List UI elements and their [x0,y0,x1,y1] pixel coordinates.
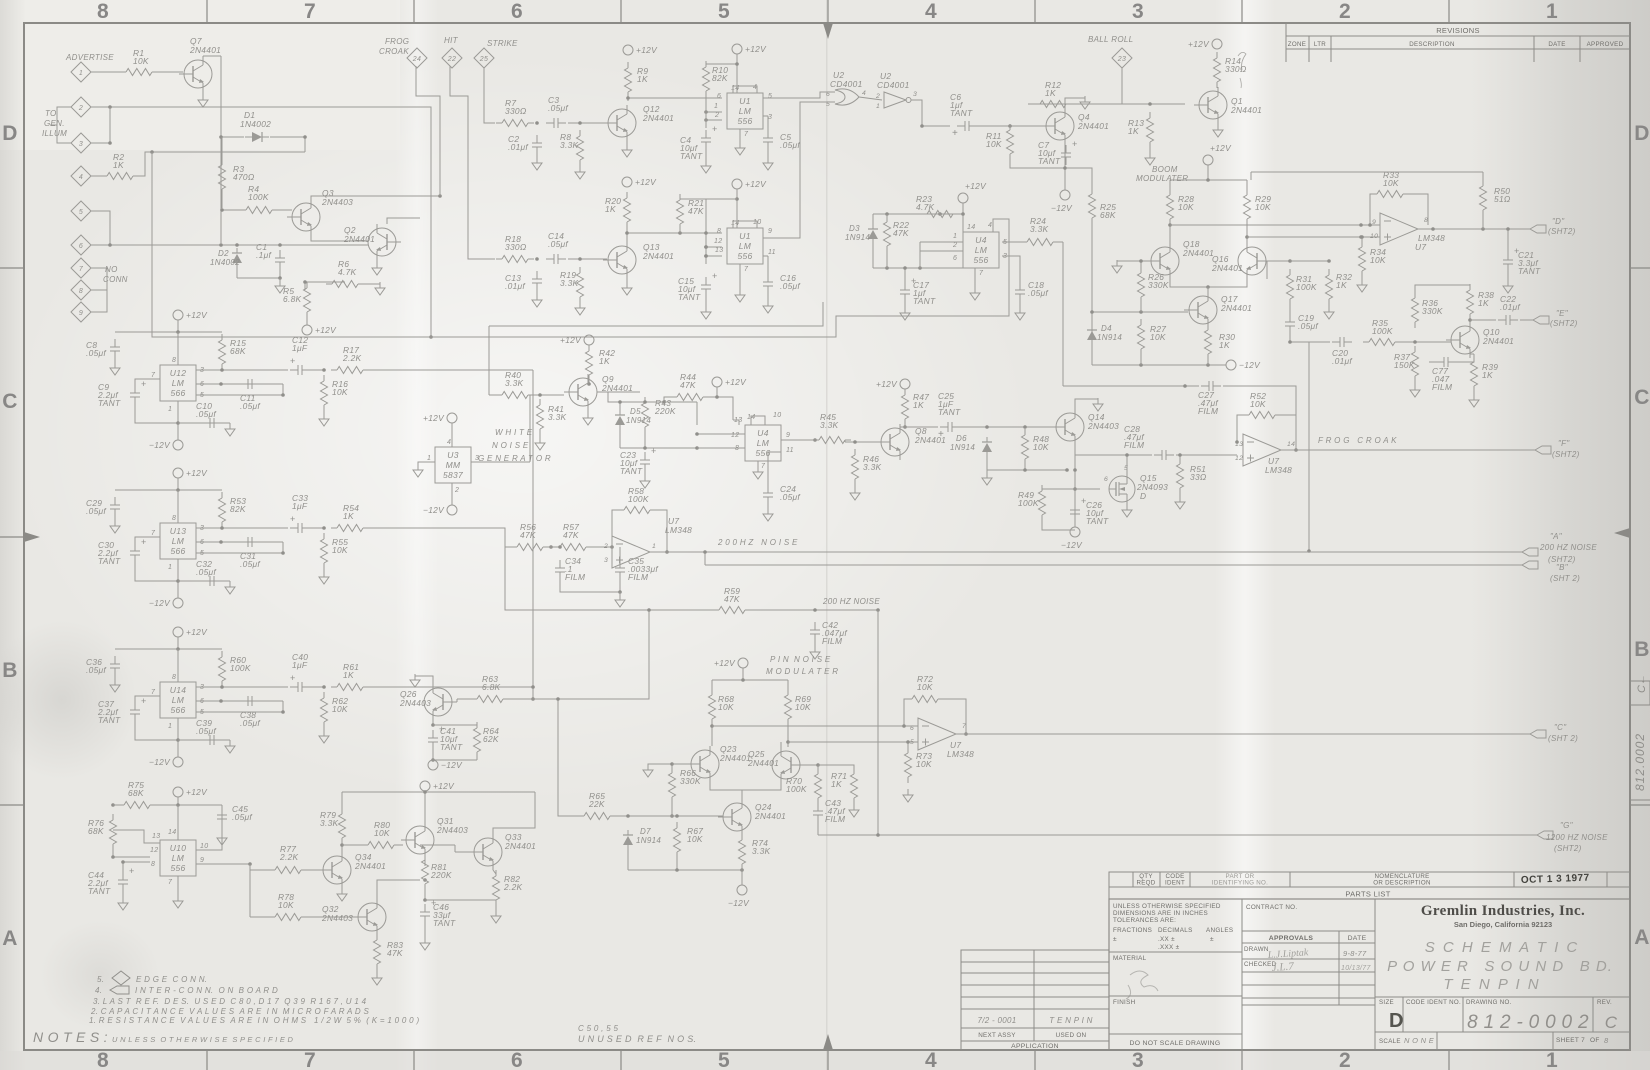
svg-text:.05μf: .05μf [196,567,217,577]
svg-text:8: 8 [79,288,83,295]
svg-text:.05μf: .05μf [240,559,261,569]
svg-text:47K: 47K [520,530,536,540]
svg-text:5: 5 [768,93,772,100]
svg-text:U12: U12 [170,368,187,378]
svg-text:DRAWING NO.: DRAWING NO. [1466,999,1512,1006]
svg-text:1K: 1K [1336,280,1347,290]
svg-text:10K: 10K [278,900,294,910]
svg-text:REQD: REQD [1136,880,1155,887]
svg-text:C 5 0 , 5 5: C 5 0 , 5 5 [578,1024,618,1033]
svg-text:TOLERANCES ARE:: TOLERANCES ARE: [1113,917,1176,924]
svg-text:+12V: +12V [186,787,208,797]
svg-text:4: 4 [79,174,83,181]
svg-text:82K: 82K [230,504,246,514]
svg-text:10: 10 [773,412,781,419]
svg-text:4: 4 [925,0,937,23]
svg-text:HIT: HIT [444,36,459,45]
svg-text:24: 24 [412,56,421,63]
svg-text:6: 6 [910,725,914,732]
svg-text:10K: 10K [795,702,811,712]
svg-text:+: + [290,356,296,366]
svg-text:APPLICATION: APPLICATION [1011,1043,1059,1050]
svg-text:"E": "E" [1556,309,1569,318]
svg-text:1N4002: 1N4002 [210,258,240,267]
svg-text:−12V: −12V [149,440,171,450]
svg-text:812.0002: 812.0002 [1633,733,1647,791]
svg-text:C←: C← [1636,674,1648,693]
svg-text:+: + [712,271,718,281]
svg-text:9: 9 [768,228,772,235]
svg-text:3.3K: 3.3K [820,420,839,430]
svg-text:OR DESCRIPTION: OR DESCRIPTION [1373,880,1431,887]
svg-text:U7: U7 [1415,242,1426,252]
svg-text:LM: LM [975,245,988,255]
svg-text:CROAK: CROAK [379,47,409,56]
svg-text:REV.: REV. [1597,999,1612,1006]
svg-text:LM348: LM348 [665,525,692,535]
svg-text:A: A [2,927,17,950]
svg-text:FILM: FILM [1124,440,1144,450]
svg-text:Gremlin Industries, Inc.: Gremlin Industries, Inc. [1421,903,1585,919]
svg-text:47K: 47K [680,380,696,390]
svg-text:8: 8 [172,357,176,364]
svg-text:1: 1 [714,103,718,110]
svg-text:D2: D2 [218,249,229,258]
svg-text:U3: U3 [447,450,458,460]
svg-text:6: 6 [1104,476,1108,483]
svg-text:CODE IDENT NO.: CODE IDENT NO. [1406,999,1461,1006]
svg-text:SCALE: SCALE [1379,1038,1401,1045]
svg-text:TANT: TANT [678,292,701,302]
svg-text:100K: 100K [786,784,807,794]
svg-text:2.2K: 2.2K [503,882,523,892]
svg-text:IDENT: IDENT [1165,880,1185,887]
svg-text:1200 HZ NOISE: 1200 HZ NOISE [1546,833,1608,842]
svg-text:CD4001: CD4001 [877,80,910,90]
svg-text:+: + [712,124,718,134]
svg-text:.01μf: .01μf [508,142,529,152]
svg-text:4: 4 [862,90,866,97]
svg-text:5: 5 [718,1049,730,1070]
svg-text:.1μf: .1μf [256,250,272,260]
svg-text:TANT: TANT [440,742,463,752]
svg-text:13: 13 [715,247,723,254]
svg-text:10: 10 [200,843,208,850]
svg-text:4: 4 [988,222,992,229]
svg-text:ZONE: ZONE [1288,41,1306,48]
svg-text:U N L E S S O T H E R W I S E: U N L E S S O T H E R W I S E S P E C I … [112,1035,294,1044]
svg-text:ANGLES: ANGLES [1206,927,1233,934]
svg-text:+: + [952,128,958,139]
svg-text:.05μf: .05μf [240,401,261,411]
svg-text:3.3K: 3.3K [320,818,339,828]
svg-text:8: 8 [717,228,721,235]
svg-text:TANT: TANT [1086,516,1109,526]
svg-text:3: 3 [79,141,83,148]
svg-text:FINISH: FINISH [1113,999,1136,1006]
svg-text:2N4403: 2N4403 [321,913,353,923]
svg-text:S C H E M A T I C: S C H E M A T I C [1425,939,1580,956]
svg-text:3.3K: 3.3K [1030,224,1049,234]
svg-text:12: 12 [714,238,722,245]
svg-text:10/13/77: 10/13/77 [1341,965,1371,972]
svg-text:.05μf: .05μf [196,409,217,419]
svg-text:82K: 82K [712,73,728,83]
svg-text:1: 1 [427,455,431,462]
svg-text:.05μf: .05μf [780,140,801,150]
svg-text:B: B [1634,638,1649,661]
svg-text:J.L.7: J.L.7 [1271,960,1294,974]
svg-text:ADVERTISE: ADVERTISE [65,53,114,62]
svg-text:2N4401: 2N4401 [642,251,674,261]
svg-text:"F": "F" [1558,439,1570,448]
svg-text:1μF: 1μF [292,501,308,511]
svg-text:68K: 68K [128,788,144,798]
svg-text:1: 1 [876,103,880,110]
svg-text:C: C [2,390,17,413]
svg-text:1K: 1K [599,356,610,366]
svg-text:10K: 10K [1370,255,1386,265]
svg-text:"B": "B" [1556,563,1569,572]
svg-text:1N914: 1N914 [636,836,661,845]
svg-text:2.2K: 2.2K [279,852,299,862]
svg-text:330K: 330K [1148,280,1169,290]
svg-text:23: 23 [1117,56,1126,63]
svg-text:MATERIAL: MATERIAL [1113,955,1147,962]
svg-text:GEN.: GEN. [44,119,65,128]
svg-text:11: 11 [768,249,776,256]
svg-text:7/2 - 0001: 7/2 - 0001 [977,1016,1016,1025]
svg-text:TANT: TANT [1038,156,1061,166]
svg-text:8: 8 [1604,1036,1609,1045]
svg-text:U N U S E D R E F N O S.: U N U S E D R E F N O S. [578,1034,696,1044]
svg-text:1K: 1K [1482,370,1493,380]
svg-text:D6: D6 [956,434,967,443]
svg-text:.05μf: .05μf [1298,321,1319,331]
svg-text:13: 13 [1235,441,1243,448]
svg-text:1: 1 [652,543,656,550]
svg-text:P O W E R S O U N D B D.: P O W E R S O U N D B D. [1387,958,1613,975]
svg-text:2N4401: 2N4401 [1482,336,1514,346]
svg-text:1K: 1K [1128,126,1139,136]
svg-text:FILM: FILM [1198,406,1218,416]
svg-text:4.: 4. [95,986,102,995]
svg-text:3: 3 [1132,1049,1144,1070]
svg-text:33Ω: 33Ω [1190,472,1207,482]
svg-text:D4: D4 [1101,324,1112,333]
svg-text:100K: 100K [628,494,649,504]
svg-text:10: 10 [1370,233,1378,240]
svg-text:22K: 22K [588,799,605,809]
svg-text:"A": "A" [1550,532,1563,541]
svg-text:10K: 10K [374,828,390,838]
svg-text:D: D [2,122,17,145]
svg-text:−12V: −12V [423,505,445,515]
svg-text:TANT: TANT [1518,266,1541,276]
svg-text:D: D [1634,122,1649,145]
svg-text:6.8K: 6.8K [283,294,302,304]
svg-text:T E N P I N: T E N P I N [1049,1016,1092,1025]
svg-text:3.3K: 3.3K [560,140,579,150]
svg-text:LM: LM [739,241,752,251]
svg-text:2N4401: 2N4401 [754,811,786,821]
svg-text:.05μf: .05μf [780,492,801,502]
svg-text:+: + [141,537,147,547]
svg-text:+: + [651,446,657,456]
svg-text:13: 13 [152,833,160,840]
svg-text:2N4401: 2N4401 [1230,105,1262,115]
svg-text:6: 6 [511,0,523,23]
svg-text:2N4401: 2N4401 [1182,248,1214,258]
svg-text:SIZE: SIZE [1379,999,1394,1006]
svg-text:200 HZ NOISE: 200 HZ NOISE [1539,543,1597,552]
svg-text:1: 1 [1546,1049,1558,1070]
svg-text:.05μf: .05μf [86,665,107,675]
svg-text:10K: 10K [332,387,348,397]
svg-text:CD4001: CD4001 [830,79,863,89]
svg-text:4.7K: 4.7K [916,202,935,212]
svg-text:100K: 100K [1372,326,1393,336]
svg-text:(SHT2): (SHT2) [1554,844,1582,853]
svg-text:1N4002: 1N4002 [240,119,271,129]
svg-text:LM: LM [757,438,770,448]
svg-text:566: 566 [170,546,185,556]
svg-text:+12V: +12V [186,310,208,320]
svg-text:FROG: FROG [385,37,409,46]
svg-text:150K: 150K [1394,360,1415,370]
svg-text:1K: 1K [1219,340,1230,350]
svg-text:2: 2 [78,105,83,112]
svg-text:TANT: TANT [433,918,456,928]
svg-text:3: 3 [768,114,772,121]
svg-text:U4: U4 [757,428,768,438]
svg-text:6: 6 [826,91,830,98]
svg-text:47K: 47K [387,948,403,958]
svg-text:100K: 100K [1296,282,1317,292]
svg-text:NEXT ASSY: NEXT ASSY [978,1032,1016,1039]
svg-text:REVISIONS: REVISIONS [1436,26,1480,35]
svg-text:TO: TO [45,109,57,118]
svg-text:10K: 10K [718,702,734,712]
svg-text:330Ω: 330Ω [505,242,527,252]
svg-text:LM: LM [739,106,752,116]
svg-text:2. C A P A C I T A N C E V A: 2. C A P A C I T A N C E V A L U E S A R… [90,1007,369,1016]
svg-text:4.7K: 4.7K [338,267,357,277]
svg-text:−12V: −12V [441,760,463,770]
svg-text:±: ± [1210,936,1214,943]
svg-text:"C": "C" [1554,723,1567,732]
svg-text:−12V: −12V [1061,540,1083,550]
svg-text:10K: 10K [332,704,348,714]
svg-text:PARTS LIST: PARTS LIST [1345,890,1390,899]
svg-text:9: 9 [1372,219,1376,226]
svg-text:3.3K: 3.3K [863,462,882,472]
svg-text:+12V: +12V [315,325,337,335]
svg-text:2: 2 [454,487,459,494]
svg-text:1μF: 1μF [292,343,308,353]
svg-text:1K: 1K [1045,88,1056,98]
svg-text:2: 2 [603,543,608,550]
svg-text:B: B [2,659,17,682]
svg-text:LM: LM [172,695,185,705]
svg-text:+12V: +12V [423,413,445,423]
svg-text:3.3K: 3.3K [560,278,579,288]
svg-text:D: D [1389,1010,1404,1032]
svg-text:5: 5 [79,209,83,216]
svg-text:.05μf: .05μf [1028,288,1049,298]
svg-text:1K: 1K [831,779,842,789]
svg-text:+12V: +12V [725,377,747,387]
svg-text:1N914: 1N914 [845,233,870,242]
svg-text:12: 12 [1235,455,1243,462]
svg-text:5837: 5837 [443,470,463,480]
svg-text:MM: MM [446,460,461,470]
svg-text:−12V: −12V [1239,360,1261,370]
svg-text:+: + [938,429,944,440]
svg-text:FRACTIONS: FRACTIONS [1113,927,1152,934]
svg-text:11: 11 [786,447,794,454]
svg-text:330Ω: 330Ω [1225,64,1247,74]
svg-text:IDENTIFYING NO.: IDENTIFYING NO. [1212,880,1268,887]
svg-text:5: 5 [718,0,730,23]
svg-text:.01μf: .01μf [1500,302,1521,312]
svg-text:200 HZ NOISE: 200 HZ NOISE [822,597,880,606]
svg-text:+12V: +12V [1210,143,1232,153]
svg-text:5: 5 [910,739,914,746]
svg-text:556: 556 [170,863,185,873]
svg-text:100K: 100K [1018,498,1039,508]
svg-text:1. R E S I S T A N C E V A L: 1. R E S I S T A N C E V A L U E S A R E… [89,1016,419,1025]
svg-text:10K: 10K [133,56,149,66]
svg-text:3. L A S T R E F. D E S. U: 3. L A S T R E F. D E S. U S E D C 8 0 ,… [93,997,367,1006]
svg-text:3.3K: 3.3K [752,846,771,856]
svg-text:14: 14 [168,829,176,836]
svg-text:10K: 10K [1250,399,1266,409]
svg-text:TANT: TANT [950,108,973,118]
svg-text:8 1 2 - 0 0 0 2: 8 1 2 - 0 0 0 2 [1467,1012,1589,1033]
svg-text:+12V: +12V [635,177,657,187]
svg-text:566: 566 [170,705,185,715]
svg-text:10K: 10K [917,682,933,692]
svg-text:W H I T E: W H I T E [495,428,533,437]
svg-text:(SHT 2): (SHT 2) [1550,574,1580,583]
svg-text:F R O G C R O A K: F R O G C R O A K [1318,436,1397,445]
svg-text:5.: 5. [97,975,104,984]
svg-text:2N4401: 2N4401 [343,234,375,244]
svg-text:1: 1 [168,564,172,571]
svg-text:2N4403: 2N4403 [436,825,468,835]
svg-text:1: 1 [953,233,957,240]
svg-text:100K: 100K [248,192,269,202]
svg-text:2N4401: 2N4401 [354,861,386,871]
svg-text:.05μf: .05μf [780,281,801,291]
svg-text:LTR: LTR [1314,41,1326,48]
svg-text:8: 8 [172,515,176,522]
svg-text:+12V: +12V [186,468,208,478]
svg-text:.05μf: .05μf [548,239,569,249]
svg-text:G E N E R A T O R: G E N E R A T O R [478,454,551,463]
svg-text:D: D [1140,491,1146,501]
svg-text:E D G E C O N N.: E D G E C O N N. [136,975,207,984]
svg-text:+12V: +12V [433,781,455,791]
svg-text:47K: 47K [563,530,579,540]
svg-text:BOOM: BOOM [1152,165,1178,174]
svg-text:(SHT2): (SHT2) [1550,319,1578,328]
svg-text:4: 4 [447,439,451,446]
svg-text:100K: 100K [230,663,251,673]
svg-text:68K: 68K [88,826,104,836]
svg-text:12: 12 [731,432,739,439]
svg-text:2N4401: 2N4401 [747,758,779,768]
svg-text:10K: 10K [687,834,703,844]
svg-text:2N4401: 2N4401 [189,45,221,55]
svg-text:2N4403: 2N4403 [1087,421,1119,431]
svg-text:+: + [1072,139,1078,149]
svg-text:330K: 330K [1422,306,1443,316]
svg-text:LM: LM [172,536,185,546]
svg-text:BALL ROLL: BALL ROLL [1088,35,1133,44]
svg-text:N O I S E: N O I S E [492,441,529,450]
svg-text:1K: 1K [343,670,354,680]
svg-text:556: 556 [737,116,752,126]
svg-text:2 0 0 H Z N O I S E: 2 0 0 H Z N O I S E [717,538,798,547]
svg-text:D3: D3 [849,224,860,233]
svg-text:LM348: LM348 [947,749,974,759]
svg-text:.05μf: .05μf [86,348,107,358]
svg-text:+12V: +12V [745,44,767,54]
svg-text:STRIKE: STRIKE [487,39,518,48]
svg-text:330K: 330K [680,776,701,786]
svg-text:TANT: TANT [620,466,643,476]
svg-text:9: 9 [79,310,83,317]
svg-text:N O T E S :: N O T E S : [33,1029,108,1045]
svg-text:+12V: +12V [714,658,736,668]
svg-text:1K: 1K [113,160,124,170]
svg-text:8: 8 [1424,217,1428,224]
svg-text:2N4403: 2N4403 [399,698,431,708]
svg-text:P I N N O I S E: P I N N O I S E [770,655,831,664]
svg-text:12: 12 [150,847,158,854]
svg-text:14: 14 [1287,441,1295,448]
svg-text:68K: 68K [1100,210,1116,220]
svg-text:U14: U14 [170,685,187,695]
svg-text:2N4401: 2N4401 [1077,121,1109,131]
svg-text:1: 1 [168,723,172,730]
svg-text:6: 6 [511,1049,523,1070]
svg-text:D7: D7 [640,827,651,836]
svg-text:DECIMALS: DECIMALS [1158,927,1193,934]
svg-text:TANT: TANT [913,296,936,306]
svg-text:.05μf: .05μf [196,726,217,736]
svg-text:3.3K: 3.3K [548,412,567,422]
svg-text:3: 3 [1132,0,1144,23]
svg-text:+: + [290,514,296,524]
svg-text:2N4401: 2N4401 [504,841,536,851]
svg-text:FILM: FILM [825,814,845,824]
svg-text:8: 8 [172,674,176,681]
svg-text:(SHT2): (SHT2) [1552,450,1580,459]
svg-text:San Diego, California 92123: San Diego, California 92123 [1454,920,1552,929]
svg-text:TANT: TANT [98,556,121,566]
svg-text:ILLUM: ILLUM [42,129,67,138]
svg-text:DRAWN: DRAWN [1244,946,1269,953]
svg-text:+12V: +12V [636,45,658,55]
svg-text:TANT: TANT [98,715,121,725]
svg-text:"G": "G" [1560,821,1574,830]
svg-text:"D": "D" [1552,217,1565,226]
svg-text:UNLESS OTHERWISE SPECIFIED: UNLESS OTHERWISE SPECIFIED [1113,903,1221,910]
svg-text:2: 2 [1339,1049,1351,1070]
